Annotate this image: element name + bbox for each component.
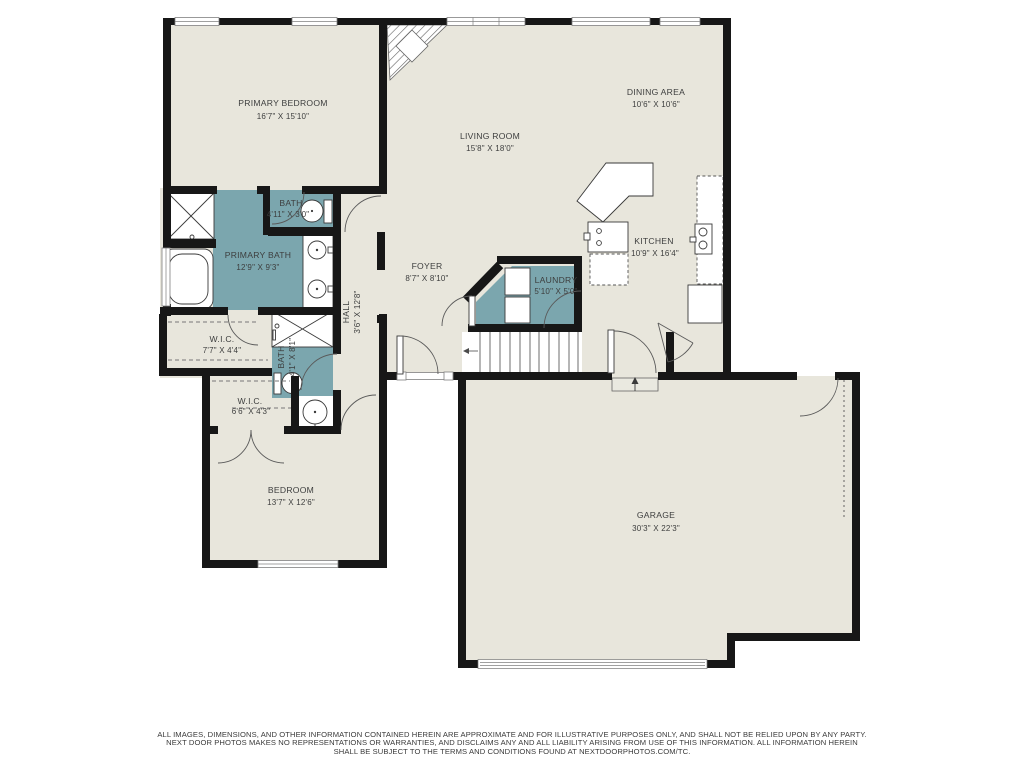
garage-door-icon — [478, 660, 707, 669]
refrigerator-icon — [688, 285, 722, 323]
room-name: GARAGE — [637, 510, 675, 520]
floor-plan-page: PRIMARY BEDROOM 16'7" X 15'10" BATH 4'11… — [0, 0, 1024, 768]
room-dims: 4'1" X 8'1" — [288, 338, 297, 377]
room-name: LAUNDRY — [535, 275, 578, 285]
window-icon — [175, 18, 219, 26]
window-icon — [660, 18, 700, 26]
room-name: BATH — [279, 198, 302, 208]
room-name: BATH — [276, 345, 286, 368]
front-door-leaf — [397, 336, 403, 374]
entry-stoop — [612, 377, 658, 391]
garage-entry-door-leaf — [608, 330, 614, 373]
room-dims: 16'7" X 15'10" — [257, 112, 309, 121]
room-dims: 5'10" X 5'0" — [534, 287, 577, 296]
window-icon — [572, 18, 650, 26]
room-name: DINING AREA — [627, 87, 685, 97]
room-name: PRIMARY BEDROOM — [238, 98, 327, 108]
staircase — [462, 332, 582, 372]
room-name: W.I.C. — [210, 334, 235, 344]
shower-icon — [272, 311, 333, 347]
room-dims: 10'6" X 10'6" — [632, 100, 680, 109]
room-dims: 6'6" X 4'3" — [232, 407, 271, 416]
room-name: W.I.C. — [238, 396, 263, 406]
window-icon — [447, 18, 525, 26]
room-name: PRIMARY BATH — [225, 250, 292, 260]
room-dims: 13'7" X 12'6" — [267, 498, 315, 507]
room-dims: 3'6" X 12'8" — [353, 290, 362, 333]
window-icon — [292, 18, 337, 26]
front-door-sidelite — [397, 372, 453, 380]
room-dims: 8'7" X 8'10" — [405, 274, 448, 283]
room-name: HALL — [341, 301, 351, 324]
room-dims: 4'11" X 3'0" — [267, 210, 310, 219]
laundry-door-leaf — [469, 296, 475, 326]
window-icon — [258, 561, 338, 568]
window-icon — [162, 248, 170, 306]
double-sink-vanity-icon — [303, 232, 333, 310]
room-name: LIVING ROOM — [460, 131, 520, 141]
floor-plan: PRIMARY BEDROOM 16'7" X 15'10" BATH 4'11… — [0, 0, 1024, 768]
room-name: BEDROOM — [268, 485, 314, 495]
floor-garage — [462, 376, 856, 666]
room-name: FOYER — [412, 261, 443, 271]
disclaimer-line-3: SHALL BE SUBJECT TO THE TERMS AND CONDIT… — [0, 748, 1024, 756]
disclaimer: ALL IMAGES, DIMENSIONS, AND OTHER INFORM… — [0, 731, 1024, 756]
room-name: KITCHEN — [634, 236, 673, 246]
room-dims: 7'7" X 4'4" — [203, 346, 242, 355]
room-dims: 15'8" X 18'0" — [466, 144, 514, 153]
room-dims: 30'3" X 22'3" — [632, 524, 680, 533]
room-dims: 12'9" X 9'3" — [236, 263, 279, 272]
bathtub-icon — [164, 249, 213, 309]
shower-icon — [168, 193, 214, 243]
room-dims: 10'9" X 16'4" — [631, 249, 679, 258]
